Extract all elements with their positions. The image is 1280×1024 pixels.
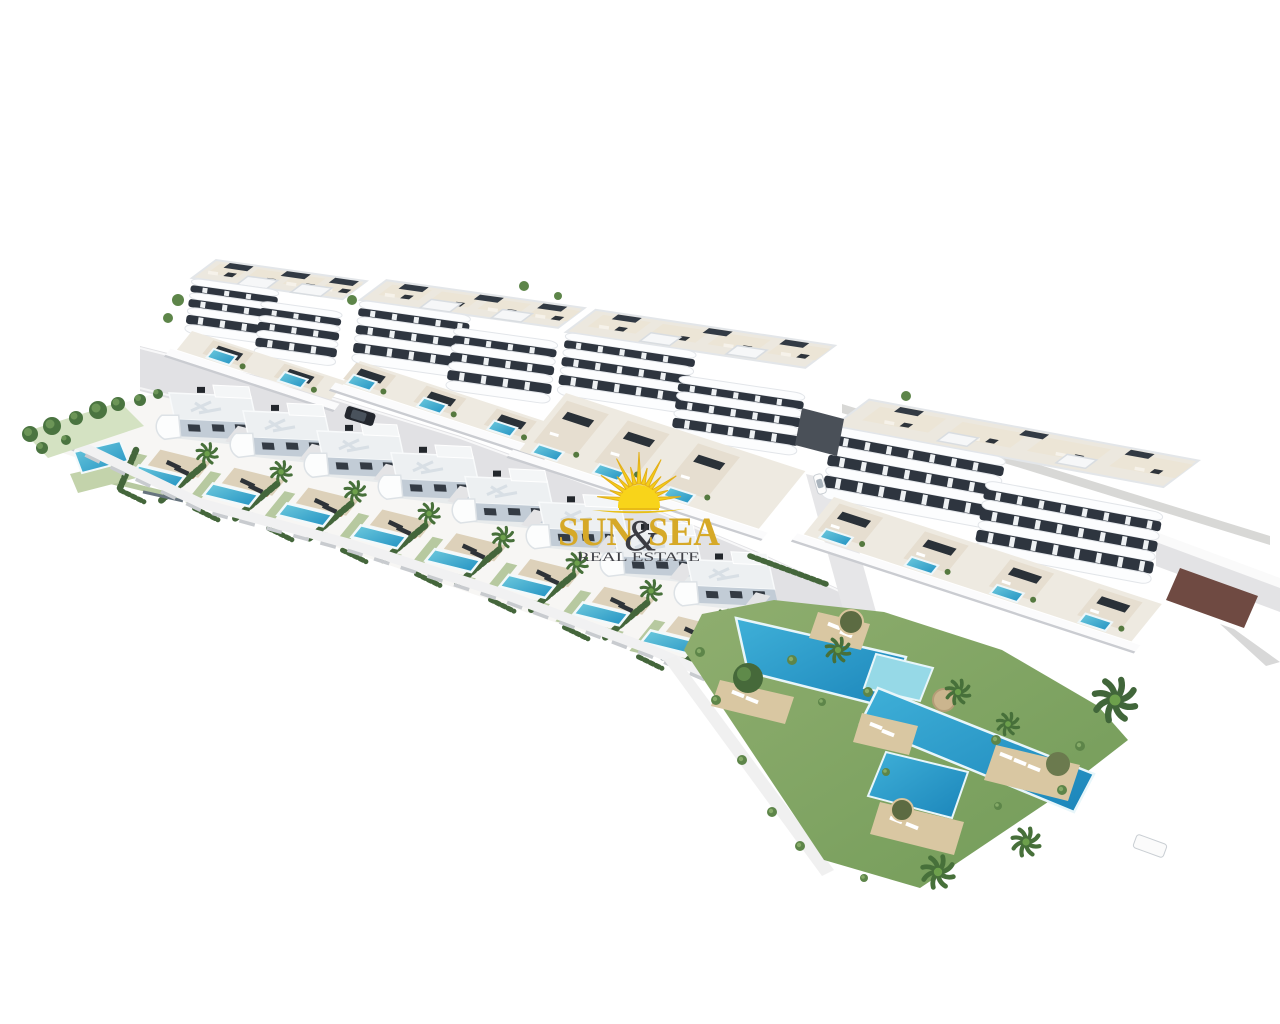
svg-text:SUN: SUN xyxy=(558,509,634,554)
svg-text:REAL ESTATE: REAL ESTATE xyxy=(577,549,700,564)
svg-text:SEA: SEA xyxy=(648,509,720,554)
